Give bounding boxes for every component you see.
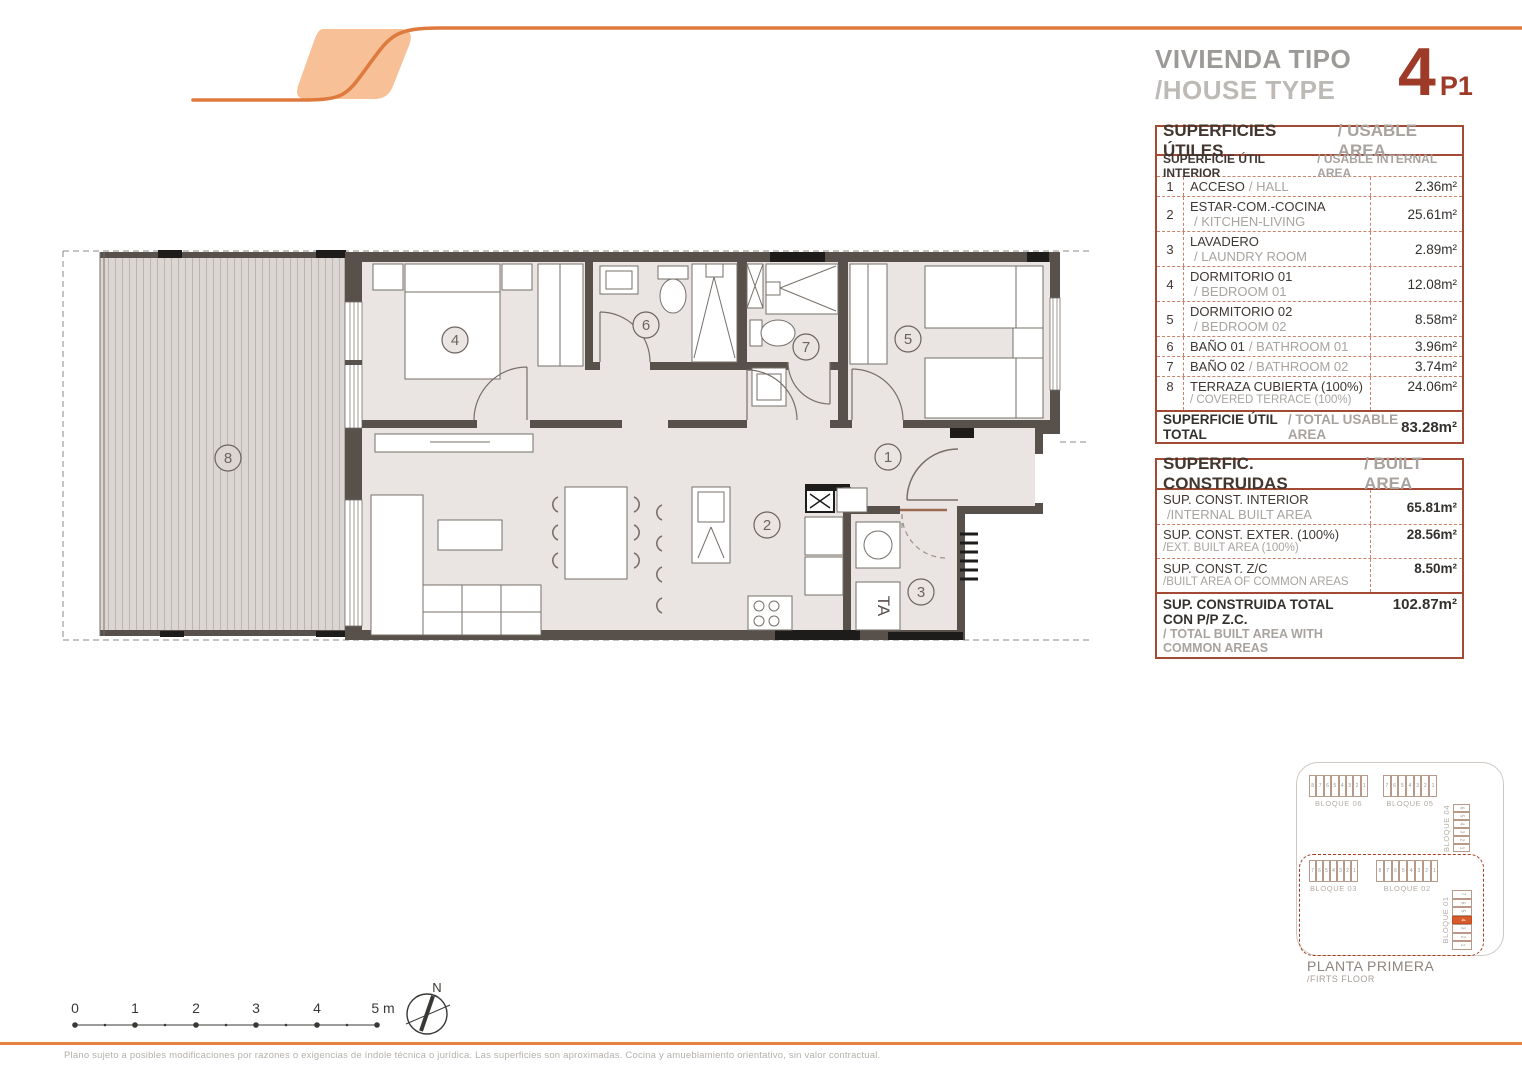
siteplan-unit-cell: 4 [1406,775,1414,797]
siteplan-unit-cell: 6 [1452,899,1472,908]
usable-subtitle-es: SUPERFICIE ÚTIL INTERIOR [1163,152,1313,180]
siteplan-unit-cell: 1 [1431,860,1439,882]
page: VIVIENDA TIPO /HOUSE TYPE 4 P1 SUPERFICI… [0,0,1522,1080]
house-type-badge: 4 P1 [1398,42,1473,102]
footer-rule [0,1042,1522,1045]
logo-shape [297,29,411,99]
siteplan-unit-cell: 4 [1407,860,1415,882]
siteplan-unit-cell: 3 [1414,775,1422,797]
room-label-6: 6 [633,312,659,338]
disclaimer-text: Plano sujeto a posibles modificaciones p… [64,1050,1464,1061]
washer-label: TA [874,596,893,617]
room-label-4: 4 [442,327,468,353]
page-title: VIVIENDA TIPO /HOUSE TYPE [1155,44,1351,106]
siteplan-unit-cell: 8 [1309,775,1316,797]
siteplan-block: 7654321BLOQUE 01 [1452,890,1472,950]
kitchen-counter [805,557,843,595]
siteplan-unit-cell: 1 [1361,775,1368,797]
siteplan-unit-cell: 2 [1423,860,1431,882]
room-label-7: 7 [793,334,819,360]
siteplan-unit-cell: 1 [1429,775,1437,797]
toilet [658,266,688,279]
siteplan-unit-cell: 3 [1337,860,1344,882]
siteplan-unit-cell: 2 [1353,775,1360,797]
siteplan-block-label: BLOQUE 06 [1309,799,1368,808]
table-row: 1 ACCESO/ HALL 2.36m² [1157,176,1462,196]
room-label-3: 3 [908,579,934,605]
siteplan-unit-cell: 7 [1309,860,1316,882]
siteplan-unit-cell: 7 [1316,775,1323,797]
siteplan-unit-cell: 4 [1453,820,1470,828]
table-row: 4 DORMITORIO 01/ BEDROOM 01 12.08m² [1157,266,1462,301]
svg-text:1: 1 [131,1000,139,1016]
siteplan-block: 7654321BLOQUE 03 [1309,860,1358,893]
north-label: N [432,980,441,995]
svg-text:4: 4 [313,1000,321,1016]
siteplan-block: 87654321BLOQUE 06 [1309,775,1368,808]
table-row: 6 BAÑO 01/ BATHROOM 01 3.96m² [1157,336,1462,356]
kitchen-counter [805,517,843,555]
siteplan-caption: PLANTA PRIMERA /FIRTS FLOOR [1307,958,1434,984]
nightstand [373,264,403,290]
siteplan-unit-cell: 1 [1351,860,1358,882]
table-row: SUP. CONST. INTERIOR/INTERNAL BUILT AREA… [1157,490,1462,524]
floor-code: P1 [1440,71,1473,102]
coffee-table [438,520,502,550]
title-es: VIVIENDA TIPO [1155,44,1351,75]
svg-text:7: 7 [802,339,810,356]
siteplan-unit-cell: 5 [1398,775,1406,797]
svg-text:0: 0 [71,1000,79,1016]
siteplan-block-label: BLOQUE 01 [1441,890,1450,950]
siteplan-unit-cell: 6 [1392,860,1400,882]
north-arrow: N [395,975,465,1045]
title-en: /HOUSE TYPE [1155,75,1351,106]
siteplan-unit-cell: 5 [1323,860,1330,882]
sofa [371,495,423,635]
siteplan-unit-cell: 7 [1384,860,1392,882]
table-row: 8 TERRAZA CUBIERTA (100%) / COVERED TERR… [1157,376,1462,410]
room-label-2: 2 [754,512,780,538]
hob [806,490,834,512]
siteplan-unit-cell: 5 [1331,775,1338,797]
siteplan-unit-cell: 6 [1453,804,1470,812]
svg-text:2: 2 [192,1000,200,1016]
siteplan-block: 7654321BLOQUE 05 [1383,775,1437,808]
siteplan-unit-cell: 6 [1316,860,1323,882]
siteplan-unit-cell: 4 [1452,916,1472,925]
usable-total-row: SUPERFICIE ÚTIL TOTAL / TOTAL USABLE ARE… [1157,410,1462,442]
room-label-5: 5 [895,326,921,352]
siteplan-block-label: BLOQUE 02 [1376,884,1438,893]
room-label-1: 1 [875,444,901,470]
siteplan: 87654321BLOQUE 067654321BLOQUE 05654321B… [1288,752,1522,982]
siteplan-unit-cell: 3 [1452,924,1472,933]
svg-text:3: 3 [252,1000,260,1016]
table-row: 3 LAVADERO/ LAUNDRY ROOM 2.89m² [1157,231,1462,266]
siteplan-unit-cell: 1 [1453,844,1470,852]
room-label-8: 8 [215,445,241,471]
siteplan-unit-cell: 2 [1453,836,1470,844]
siteplan-unit-cell: 3 [1453,828,1470,836]
svg-text:2: 2 [763,517,771,534]
usable-subtitle-en: / USABLE INTERNAL AREA [1313,152,1462,180]
table-row: 5 DORMITORIO 02/ BEDROOM 02 8.58m² [1157,301,1462,336]
dining-table [565,487,627,579]
siteplan-unit-cell: 3 [1415,860,1423,882]
siteplan-unit-cell: 7 [1383,775,1391,797]
table-row: 2 ESTAR-COM.-COCINA/ KITCHEN-LIVING 25.6… [1157,196,1462,231]
svg-text:8: 8 [224,450,232,467]
nightstand [502,264,532,290]
siteplan-block: 87654321BLOQUE 02 [1376,860,1438,893]
svg-text:6: 6 [642,317,650,334]
sideboard [375,434,533,452]
svg-text:5: 5 [904,331,912,348]
siteplan-unit-cell: 6 [1391,775,1399,797]
bed [925,266,1043,328]
siteplan-block: 654321BLOQUE 04 [1453,804,1470,852]
stove [748,596,792,630]
siteplan-unit-cell: 4 [1339,775,1346,797]
siteplan-block-label: BLOQUE 04 [1442,804,1451,852]
bed [405,264,500,379]
siteplan-unit-cell: 7 [1452,890,1472,899]
bed [925,358,1043,418]
house-type-number: 4 [1398,42,1436,102]
svg-text:3: 3 [917,584,925,601]
siteplan-unit-cell: 5 [1452,907,1472,916]
siteplan-block-label: BLOQUE 05 [1383,799,1437,808]
siteplan-unit-cell: 5 [1399,860,1407,882]
svg-text:5 m: 5 m [371,1000,394,1016]
usable-table-subtitle: SUPERFICIE ÚTIL INTERIOR / USABLE INTERN… [1157,156,1462,176]
siteplan-unit-cell: 6 [1324,775,1331,797]
table-row: 7 BAÑO 02/ BATHROOM 02 3.74m² [1157,356,1462,376]
siteplan-unit-cell: 2 [1452,933,1472,942]
siteplan-unit-cell: 1 [1452,941,1472,950]
siteplan-unit-cell: 2 [1344,860,1351,882]
table-row: SUP. CONST. EXTER. (100%) /EXT. BUILT AR… [1157,524,1462,558]
sofa [423,585,541,635]
svg-text:4: 4 [451,332,459,349]
nightstand [1013,328,1043,358]
kitchen-counter [837,488,867,512]
toilet [750,320,762,346]
siteplan-unit-cell: 4 [1330,860,1337,882]
built-table-title: SUPERFIC. CONSTRUIDAS / BUILT AREA [1157,460,1462,490]
built-area-table: SUPERFIC. CONSTRUIDAS / BUILT AREA SUP. … [1155,458,1464,659]
siteplan-unit-cell: 8 [1376,860,1384,882]
siteplan-block-label: BLOQUE 03 [1309,884,1358,893]
siteplan-unit-cell: 3 [1346,775,1353,797]
built-total-row: SUP. CONSTRUIDA TOTAL CON P/P Z.C. / TOT… [1157,592,1462,657]
floor-plan: 8 4 6 7 5 1 2 [60,230,1100,650]
terrace [100,250,346,637]
table-row: SUP. CONST. Z/C /BUILT AREA OF COMMON AR… [1157,558,1462,592]
siteplan-unit-cell: 5 [1453,812,1470,820]
siteplan-unit-cell: 2 [1421,775,1429,797]
usable-area-table: SUPERFICIES ÚTILES / USABLE AREA SUPERFI… [1155,125,1464,444]
svg-text:1: 1 [884,449,892,466]
